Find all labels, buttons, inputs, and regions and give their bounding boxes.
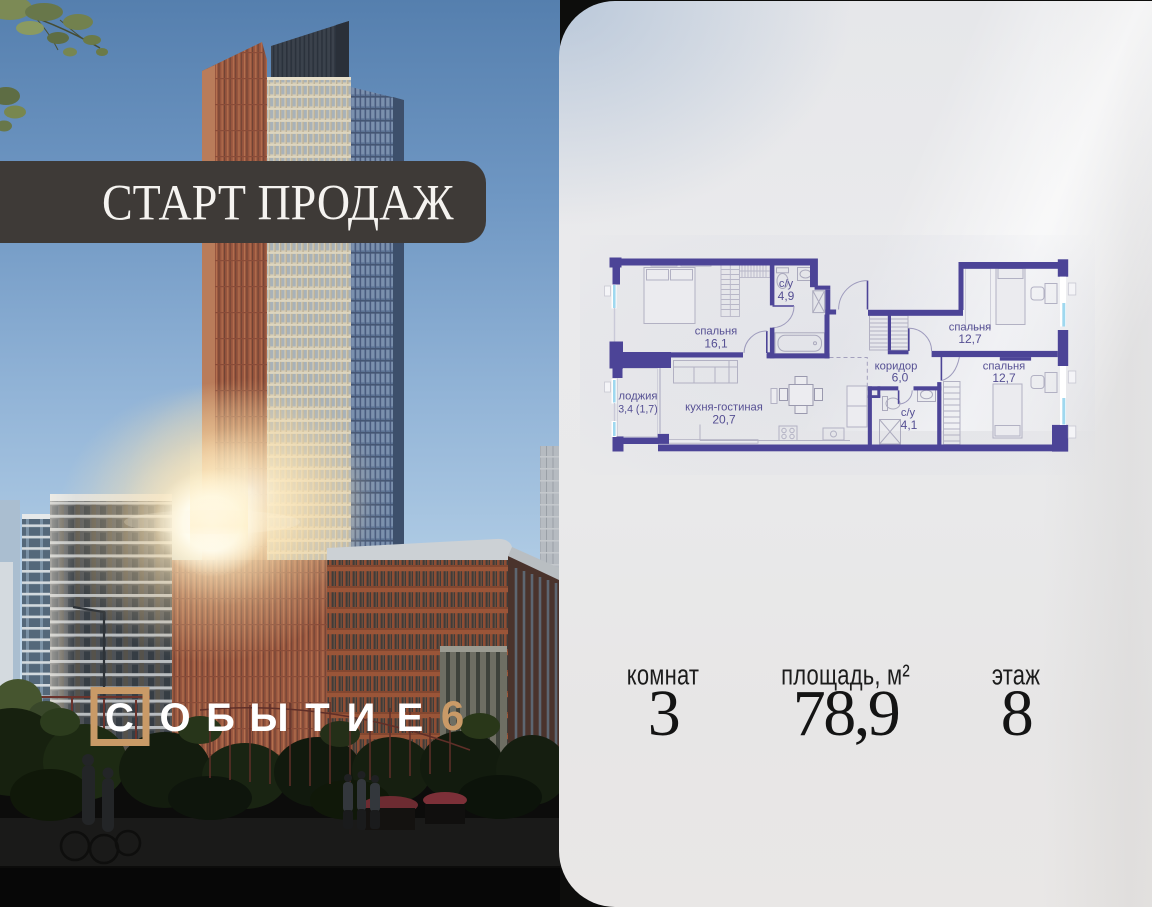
svg-text:6,0: 6,0 (892, 371, 909, 385)
svg-text:лоджия: лоджия (619, 391, 658, 403)
svg-text:12,7: 12,7 (958, 332, 982, 346)
svg-text:12,7: 12,7 (992, 371, 1016, 385)
svg-text:3,4 (1,7): 3,4 (1,7) (618, 404, 657, 416)
svg-text:4,1: 4,1 (901, 418, 918, 432)
svg-text:20,7: 20,7 (712, 413, 736, 427)
svg-text:4,9: 4,9 (778, 289, 795, 303)
svg-text:16,1: 16,1 (704, 337, 728, 351)
